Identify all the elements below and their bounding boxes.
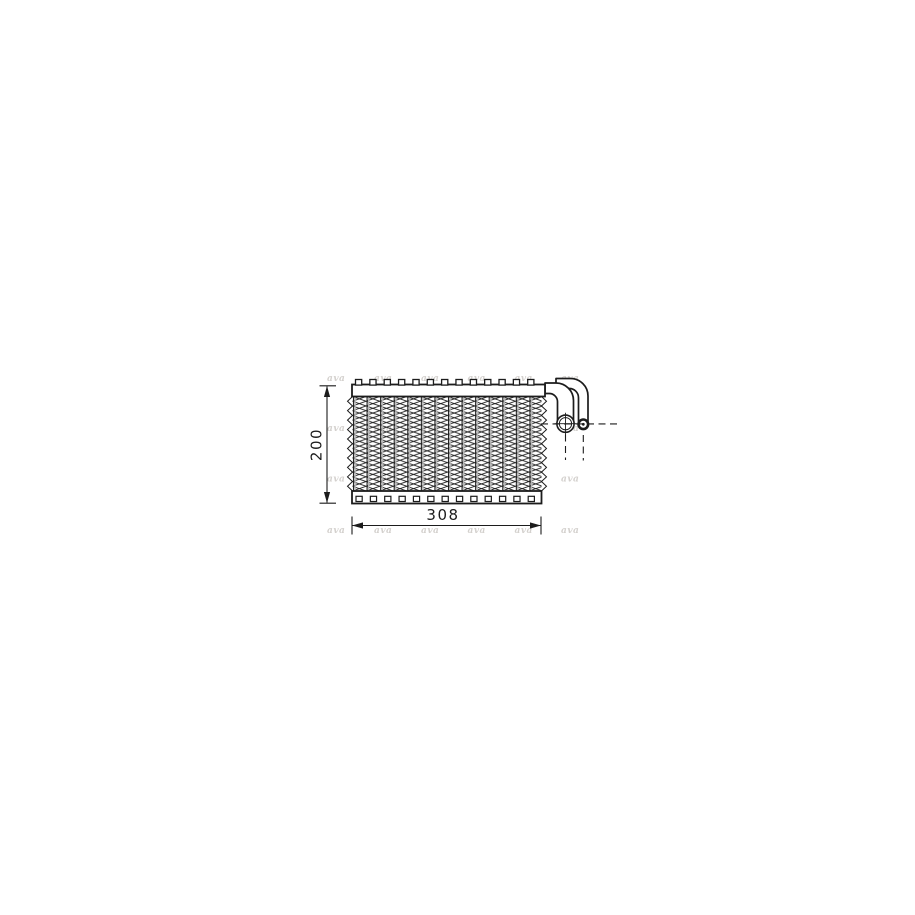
arrowhead-left: [352, 522, 363, 528]
watermark-text: ava: [421, 526, 439, 536]
plate-notch: [456, 496, 462, 501]
fin-edge-right: [542, 397, 547, 492]
plate-tab: [485, 380, 491, 386]
plate-tab: [427, 380, 433, 386]
plate-tab: [356, 380, 362, 386]
plate-tab: [456, 380, 462, 386]
watermark-text: ava: [468, 526, 486, 536]
fin-matrix: [353, 397, 542, 492]
dimension-height: 200: [308, 386, 337, 503]
watermark-text: ava: [561, 526, 579, 536]
watermark-text: ava: [327, 526, 345, 536]
bottom-plate: [352, 491, 542, 504]
plate-tab: [370, 380, 376, 386]
plate-notch: [370, 496, 376, 501]
plate-notch: [514, 496, 520, 501]
plate-tab: [499, 380, 505, 386]
plate-tab: [470, 380, 476, 386]
plate-notch: [528, 496, 534, 501]
fin-edge-left: [348, 397, 353, 492]
plate-tab: [528, 380, 534, 386]
arrowhead-up: [324, 386, 330, 397]
watermark-text: ava: [327, 374, 345, 384]
plate-notch: [500, 496, 506, 501]
plate-tab: [442, 380, 448, 386]
watermark-text: ava: [561, 475, 579, 485]
plate-notch: [428, 496, 434, 501]
arrowhead-right: [530, 522, 541, 528]
evaporator-core: [348, 380, 547, 504]
plate-notch: [399, 496, 405, 501]
plate-tab: [399, 380, 405, 386]
watermark-text: ava: [327, 424, 345, 434]
plate-tab: [513, 380, 519, 386]
plate-notch: [485, 496, 491, 501]
plate-tab: [413, 380, 419, 386]
plate-tab: [384, 380, 390, 386]
watermark-text: ava: [374, 526, 392, 536]
plate-notch: [385, 496, 391, 501]
evaporator-drawing: avaavaavaavaavaavaavaavaavaavaavaavaavaa…: [0, 0, 915, 915]
plate-notch: [413, 496, 419, 501]
plate-notch: [442, 496, 448, 501]
front-pipe: [545, 383, 574, 421]
plate-notch: [471, 496, 477, 501]
canvas: avaavaavaavaavaavaavaavaavaavaavaavaavaa…: [0, 0, 915, 915]
arrowhead-down: [324, 492, 330, 503]
height-dimension-label: 200: [308, 428, 326, 461]
width-dimension-label: 308: [426, 506, 459, 524]
plate-notch: [356, 496, 362, 501]
watermark-text: ava: [327, 475, 345, 485]
